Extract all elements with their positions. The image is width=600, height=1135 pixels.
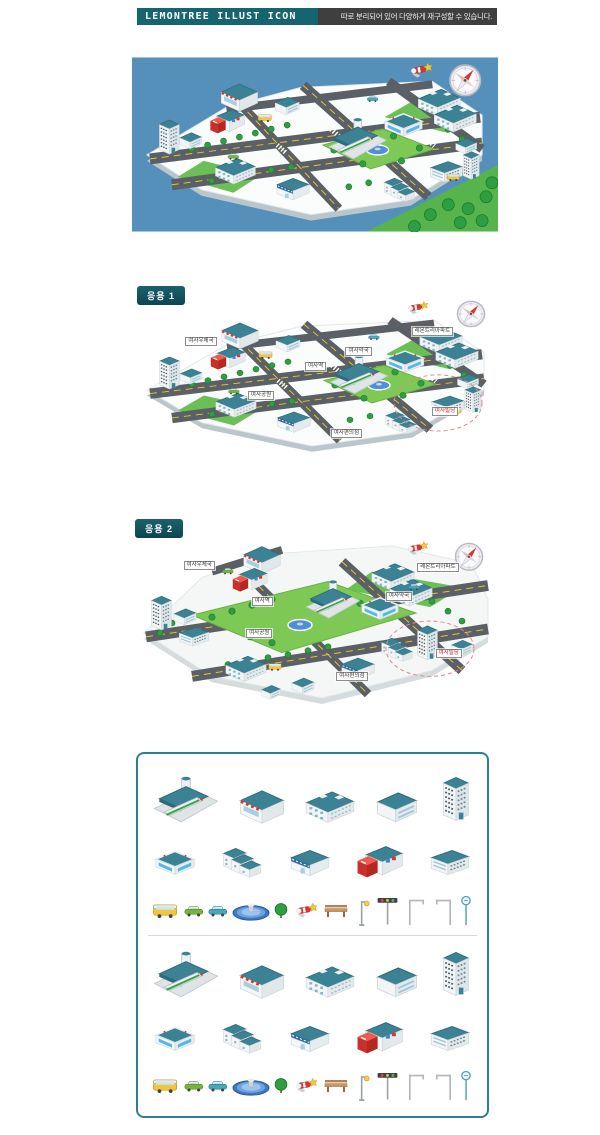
icon-row xyxy=(152,1064,473,1102)
stepped-office-icon xyxy=(219,1019,265,1057)
small-office-icon xyxy=(371,959,423,1003)
city-map-app2-scene xyxy=(132,538,500,708)
apartment-icon xyxy=(304,959,356,1003)
post-office-icon xyxy=(354,1019,406,1057)
stepped-office-icon xyxy=(219,843,265,881)
small-office-icon xyxy=(371,784,423,828)
city-map-app1: 여사우체국레몬트리아파트여사약국여사역여사공원여사편의점여사빌딩 xyxy=(132,298,500,462)
signboard-shop-icon xyxy=(287,1019,333,1057)
car-teal-icon xyxy=(208,895,228,927)
icon-group-1 xyxy=(138,760,487,935)
high-rise-tower-icon xyxy=(439,945,473,1003)
train-station-icon xyxy=(152,947,220,1003)
fountain-icon xyxy=(232,895,270,927)
corner-pole-left-icon xyxy=(405,1070,428,1102)
car-green-icon xyxy=(184,1070,204,1102)
icon-row xyxy=(152,943,473,1003)
corner-pole-right-icon xyxy=(432,1070,455,1102)
rocket-toy-icon xyxy=(292,1070,319,1102)
office-block-icon xyxy=(427,1019,473,1057)
office-block-icon xyxy=(427,843,473,881)
high-rise-tower-icon xyxy=(439,770,473,828)
signboard-shop-icon xyxy=(287,843,333,881)
post-office-icon xyxy=(354,843,406,881)
traffic-light-icon xyxy=(374,895,401,927)
city-map-app2: 여사우체국레몬트리아파트여사역여사약국여사공원여사편의점여사빌딩 xyxy=(132,538,500,708)
city-map-app1-scene xyxy=(132,298,500,462)
shopping-mall-icon xyxy=(152,1019,198,1057)
icon-row xyxy=(152,1011,473,1057)
icon-row xyxy=(152,768,473,828)
tree-icon xyxy=(274,895,288,927)
icon-row xyxy=(152,835,473,881)
rocket-toy-icon xyxy=(408,301,429,314)
city-map-main-scene xyxy=(132,57,498,232)
compass-icon xyxy=(455,299,486,329)
bus-icon xyxy=(152,1070,180,1102)
bus-stop-sign-icon xyxy=(459,1070,473,1102)
icon-group-2 xyxy=(138,936,487,1111)
car-green-icon xyxy=(184,895,204,927)
icon-library-panel xyxy=(136,752,489,1118)
bus-stop-sign-icon xyxy=(459,895,473,927)
bus-icon xyxy=(152,895,180,927)
car-teal-icon xyxy=(208,1070,228,1102)
corner-pole-right-icon xyxy=(432,895,455,927)
street-lamp-icon xyxy=(354,1070,370,1102)
corner-pole-left-icon xyxy=(405,895,428,927)
header: LEMONTREE ILLUST ICON 따로 분리되어 있어 다양하게 재구… xyxy=(137,8,497,25)
bench-icon xyxy=(323,1070,349,1102)
tree-icon xyxy=(274,1070,288,1102)
apartment-icon xyxy=(304,784,356,828)
icon-row xyxy=(152,889,473,927)
fountain-icon xyxy=(232,1070,270,1102)
bench-icon xyxy=(323,895,349,927)
street-lamp-icon xyxy=(354,895,370,927)
header-description: 따로 분리되어 있어 다양하게 재구성할 수 있습니다. xyxy=(318,8,497,25)
rocket-toy-icon xyxy=(292,895,319,927)
city-map-main xyxy=(132,57,498,232)
market-icon xyxy=(236,959,288,1003)
shopping-mall-icon xyxy=(152,843,198,881)
page: LEMONTREE ILLUST ICON 따로 분리되어 있어 다양하게 재구… xyxy=(0,0,600,1135)
page-title: LEMONTREE ILLUST ICON xyxy=(137,8,318,25)
traffic-light-icon xyxy=(374,1070,401,1102)
market-icon xyxy=(236,784,288,828)
app2-badge: 응용 2 xyxy=(135,519,183,538)
train-station-icon xyxy=(152,772,220,828)
